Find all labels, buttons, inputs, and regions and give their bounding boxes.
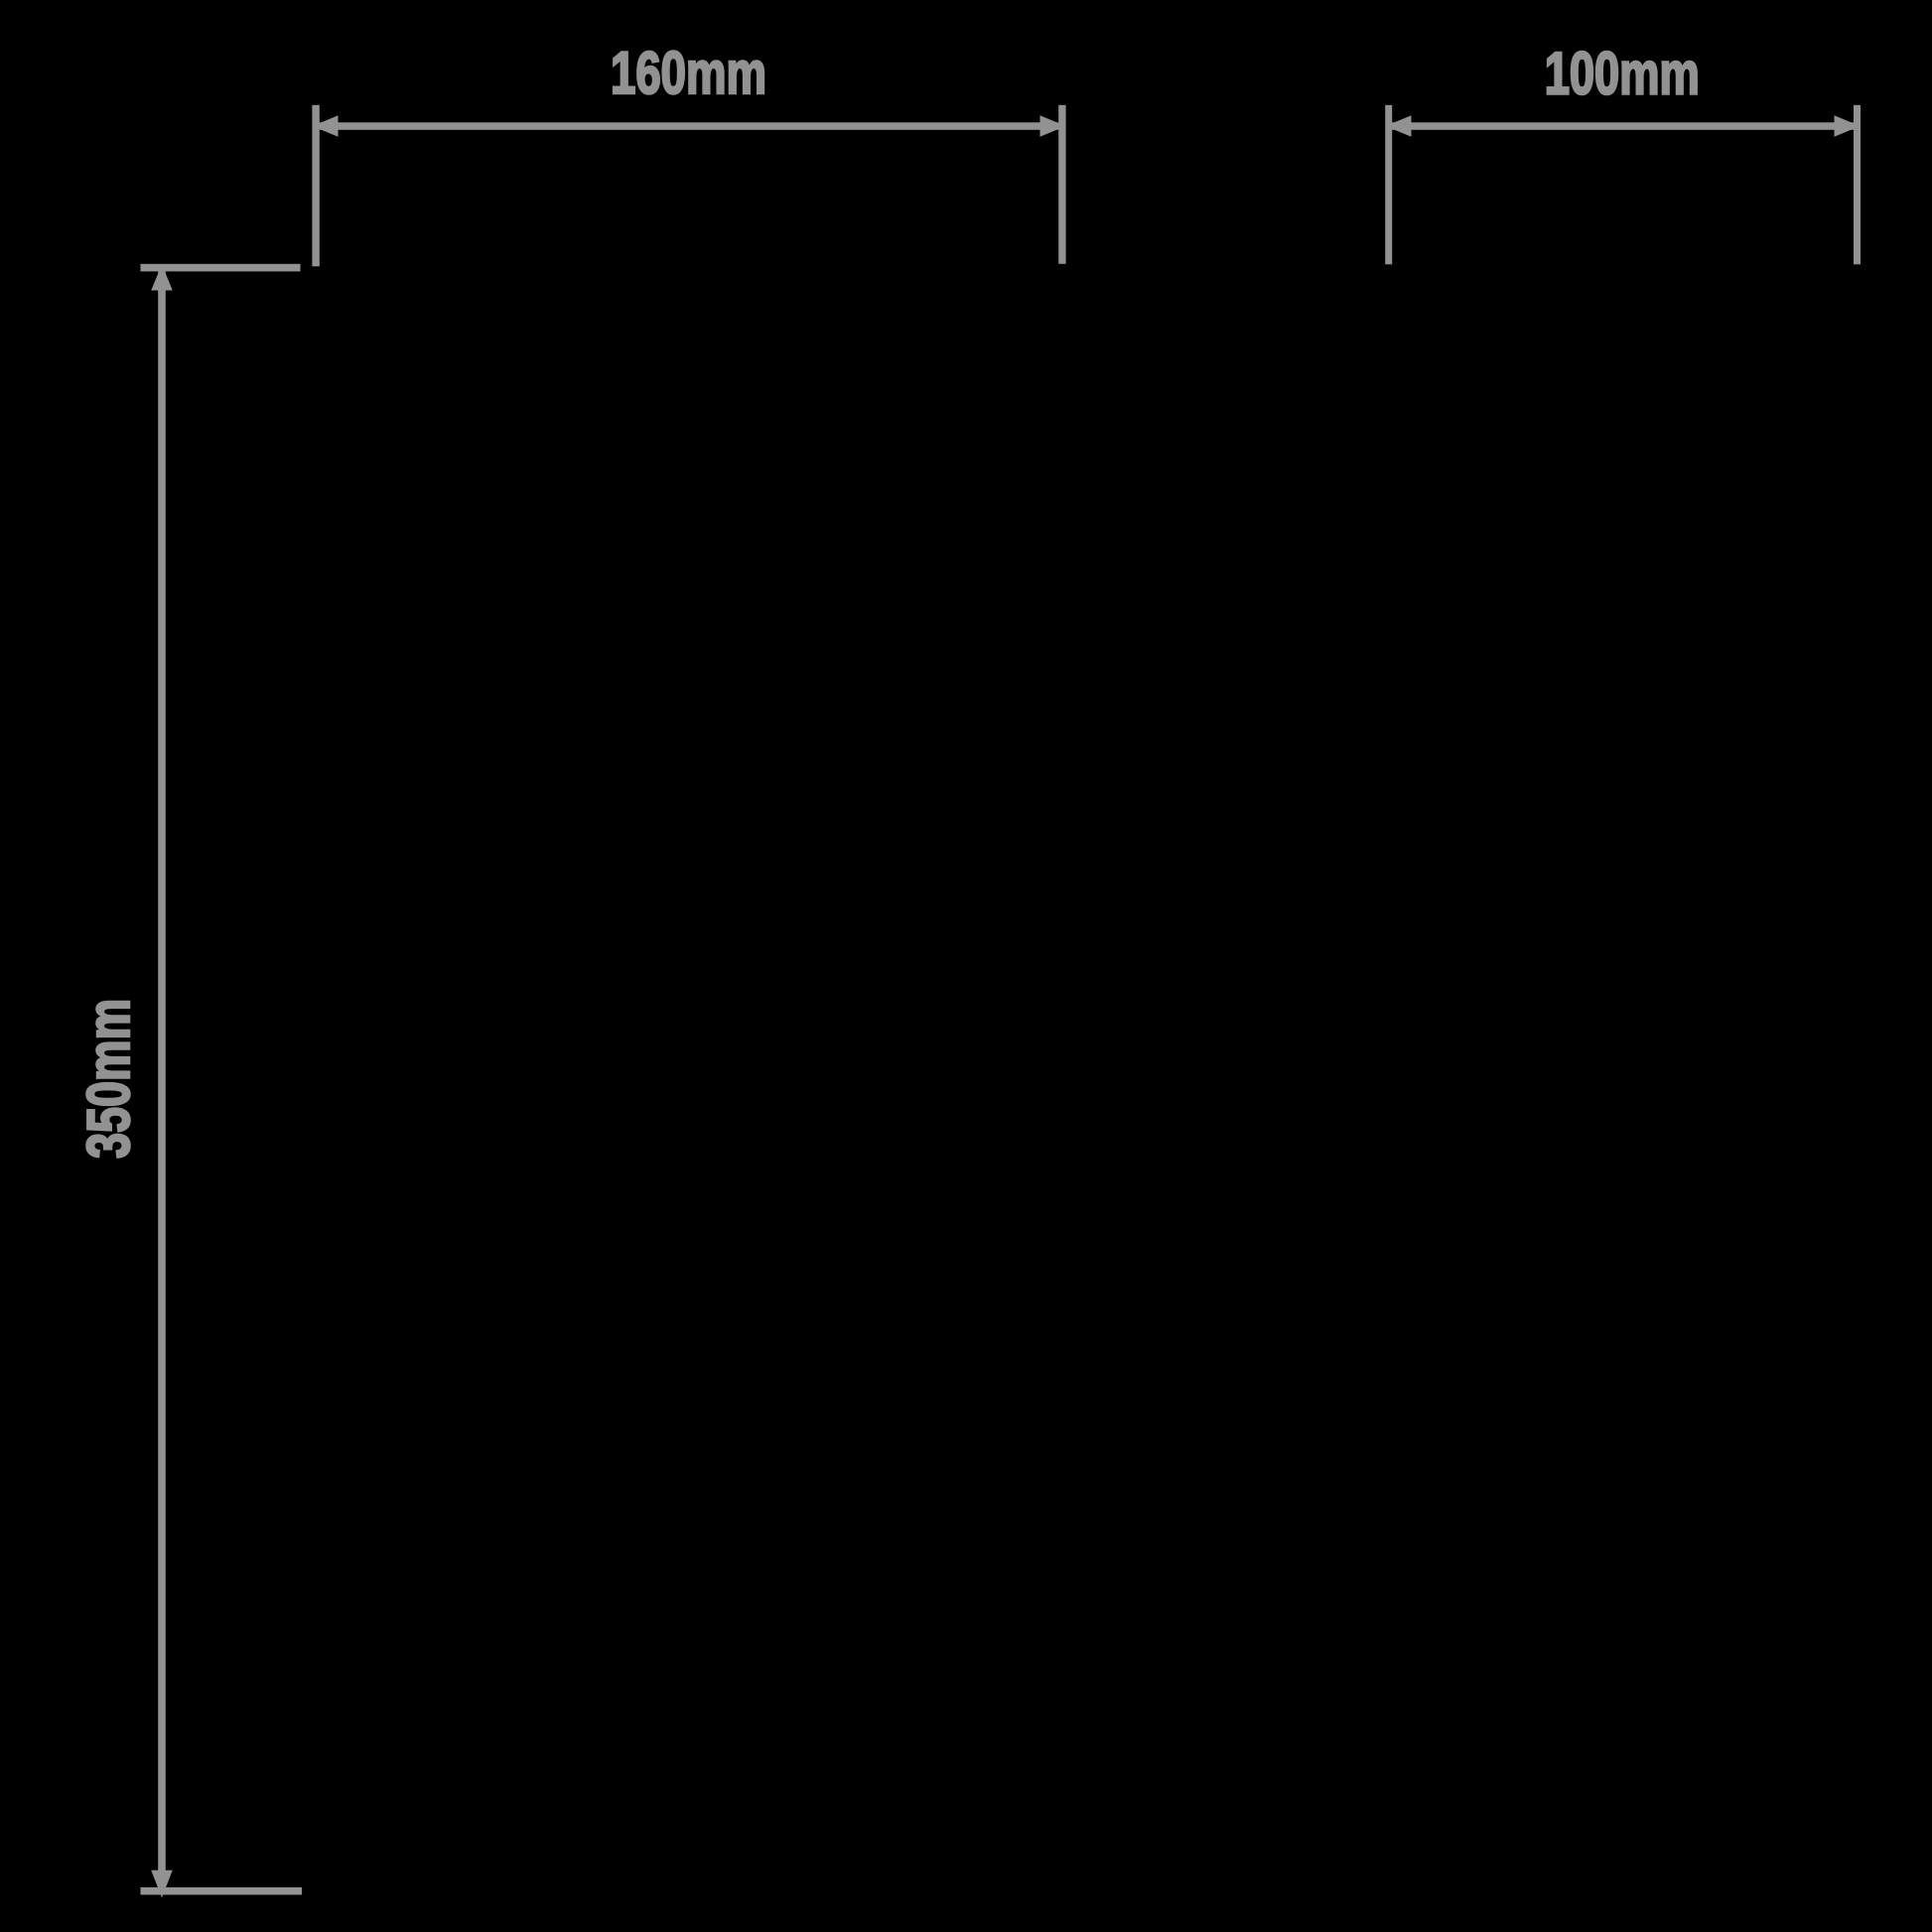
svg-text:160mm: 160mm [611,40,766,106]
svg-text:350mm: 350mm [75,999,142,1159]
svg-text:100mm: 100mm [1545,41,1700,107]
